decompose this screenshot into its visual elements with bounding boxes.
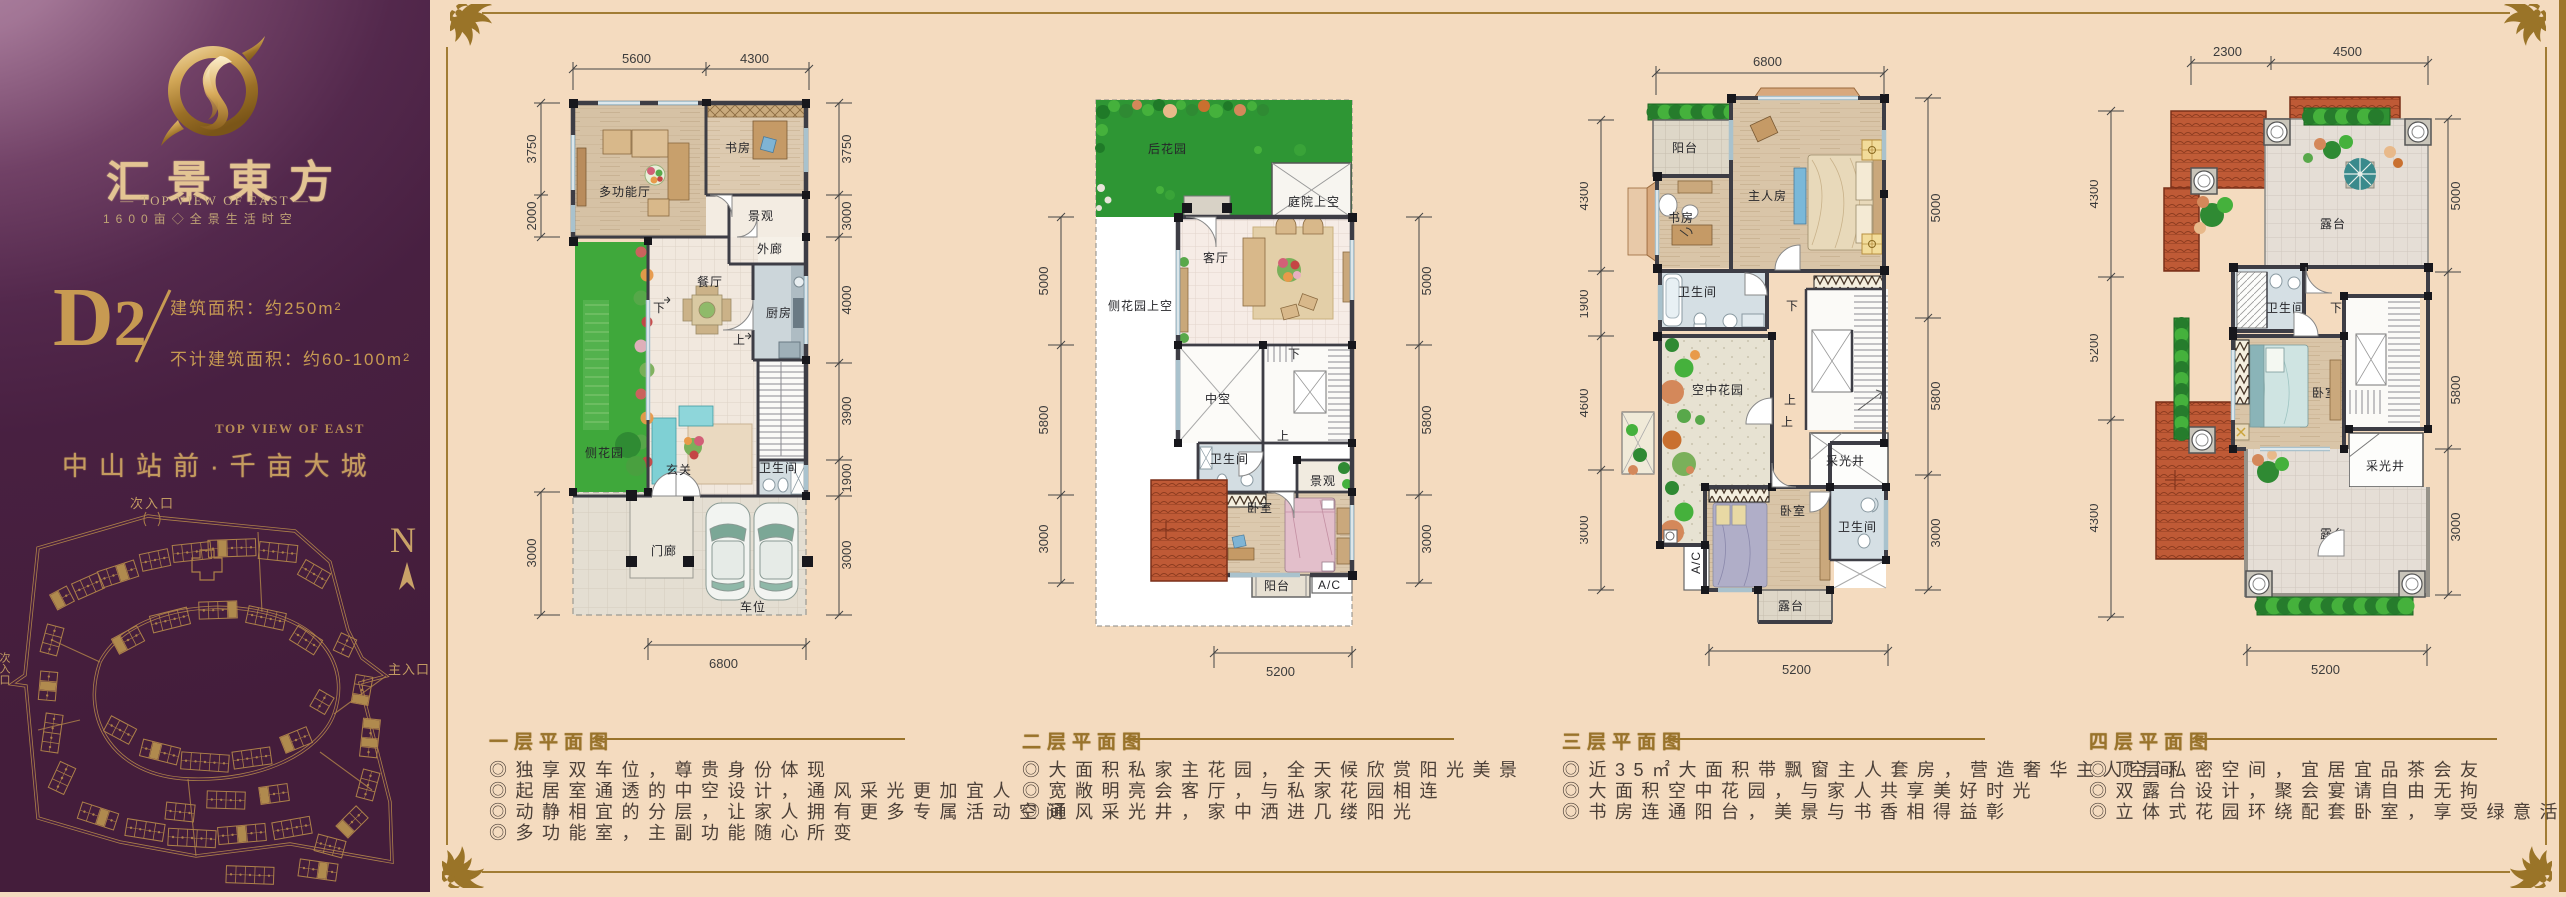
svg-text:上: 上 — [1781, 415, 1794, 429]
svg-text:5800: 5800 — [2448, 376, 2463, 405]
svg-text:3000: 3000 — [524, 539, 539, 568]
svg-text:5800: 5800 — [1419, 406, 1434, 435]
svg-text:阳台: 阳台 — [1264, 578, 1290, 593]
svg-text:多功能厅: 多功能厅 — [599, 185, 651, 199]
svg-text:5200: 5200 — [1782, 662, 1811, 677]
svg-text:厨房: 厨房 — [766, 305, 792, 320]
svg-text:次入口: 次入口 — [130, 496, 175, 511]
svg-text:5800: 5800 — [1036, 406, 1051, 435]
svg-text:主人房: 主人房 — [1748, 188, 1787, 203]
svg-text:空中花园: 空中花园 — [1692, 382, 1744, 397]
svg-text:采光井: 采光井 — [1826, 454, 1865, 468]
svg-text:4300: 4300 — [740, 51, 769, 66]
svg-text:3750: 3750 — [524, 135, 539, 164]
svg-text:3000: 3000 — [1928, 519, 1943, 548]
svg-text:1900: 1900 — [839, 464, 854, 493]
svg-text:上: 上 — [1277, 429, 1290, 443]
svg-text:N: N — [390, 520, 416, 560]
svg-text:卫生间: 卫生间 — [1838, 520, 1877, 534]
svg-text:露台: 露台 — [1778, 598, 1804, 613]
svg-text:采光井: 采光井 — [2366, 459, 2405, 473]
svg-text:2300: 2300 — [2213, 44, 2242, 59]
svg-text:3900: 3900 — [839, 397, 854, 426]
svg-text:餐厅: 餐厅 — [697, 274, 723, 289]
svg-text:下: 下 — [653, 301, 666, 315]
svg-text:卫生间: 卫生间 — [1210, 452, 1249, 466]
svg-text:3000: 3000 — [839, 202, 854, 231]
svg-text:露台: 露台 — [2320, 216, 2346, 231]
svg-text:3000: 3000 — [1419, 525, 1434, 554]
svg-text:车位: 车位 — [740, 599, 766, 614]
svg-text:3000: 3000 — [2448, 513, 2463, 542]
svg-text:侧花园: 侧花园 — [585, 445, 624, 460]
svg-text:书房: 书房 — [1668, 210, 1694, 225]
svg-text:客厅: 客厅 — [1203, 250, 1229, 265]
svg-text:4600: 4600 — [1580, 389, 1591, 418]
svg-text:次入口: 次入口 — [0, 651, 11, 685]
svg-text:6800: 6800 — [709, 656, 738, 671]
svg-text:卧室: 卧室 — [1780, 503, 1806, 518]
svg-text:下: 下 — [1786, 299, 1799, 313]
svg-text:景观: 景观 — [748, 209, 774, 223]
svg-text:玄关: 玄关 — [666, 462, 692, 477]
svg-text:上: 上 — [733, 333, 746, 347]
svg-text:4000: 4000 — [839, 286, 854, 315]
svg-text:侧花园上空: 侧花园上空 — [1108, 298, 1173, 313]
svg-text:中空: 中空 — [1205, 391, 1231, 406]
svg-text:卫生间: 卫生间 — [1678, 285, 1717, 299]
svg-text:5800: 5800 — [1928, 382, 1943, 411]
svg-text:3000: 3000 — [839, 541, 854, 570]
svg-text:卧室: 卧室 — [1247, 500, 1273, 515]
svg-text:上: 上 — [1784, 393, 1797, 407]
svg-text:景观: 景观 — [1310, 474, 1336, 488]
svg-text:3750: 3750 — [839, 135, 854, 164]
svg-text:5000: 5000 — [2448, 182, 2463, 211]
svg-text:3000: 3000 — [1580, 516, 1591, 545]
svg-text:后花园: 后花园 — [1148, 141, 1187, 156]
svg-text:卫生间: 卫生间 — [759, 461, 798, 475]
svg-text:5000: 5000 — [1036, 267, 1051, 296]
svg-text:6800: 6800 — [1753, 54, 1782, 69]
svg-text:A/C: A/C — [1318, 578, 1341, 592]
svg-text:下: 下 — [2330, 301, 2343, 315]
svg-text:5200: 5200 — [1266, 664, 1295, 679]
svg-text:书房: 书房 — [725, 140, 751, 155]
svg-text:4300: 4300 — [2090, 504, 2101, 533]
svg-text:庭院上空: 庭院上空 — [1288, 194, 1340, 209]
svg-text:下: 下 — [1288, 347, 1301, 361]
svg-text:5000: 5000 — [1419, 267, 1434, 296]
svg-text:5200: 5200 — [2090, 334, 2101, 363]
svg-text:外廊: 外廊 — [757, 241, 783, 256]
svg-text:1900: 1900 — [1580, 290, 1591, 319]
svg-text:2000: 2000 — [524, 202, 539, 231]
svg-text:阳台: 阳台 — [1672, 140, 1698, 155]
svg-text:5600: 5600 — [622, 51, 651, 66]
svg-text:4300: 4300 — [2090, 180, 2101, 209]
svg-text:3000: 3000 — [1036, 525, 1051, 554]
svg-text:5000: 5000 — [1928, 194, 1943, 223]
svg-text:4500: 4500 — [2333, 44, 2362, 59]
svg-text:4300: 4300 — [1580, 182, 1591, 211]
svg-text:5200: 5200 — [2311, 662, 2340, 677]
svg-text:主入口: 主入口 — [388, 662, 430, 677]
svg-text:门廊: 门廊 — [651, 543, 677, 558]
svg-text:A/C: A/C — [1689, 551, 1703, 574]
